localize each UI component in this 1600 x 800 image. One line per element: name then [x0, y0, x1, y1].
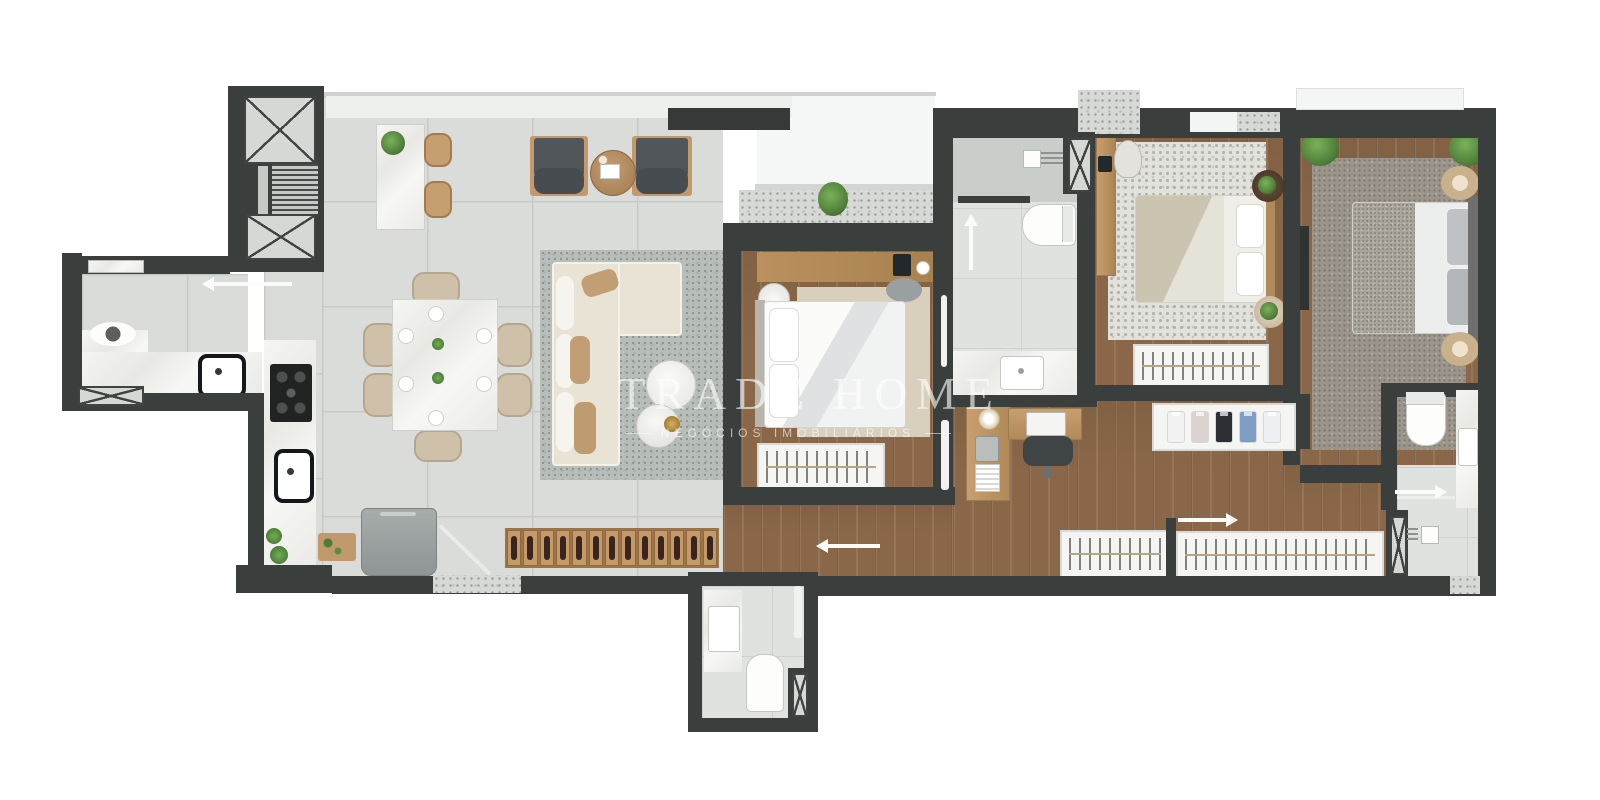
- laundry-basket: [90, 322, 136, 346]
- closet-hangers: [1142, 352, 1260, 380]
- elevator-shaft-1: [244, 96, 316, 164]
- armchair-1-pillow: [534, 168, 584, 194]
- place-setting: [428, 306, 444, 322]
- bedroom1-desk-cup: [916, 261, 930, 275]
- office-chair-base: [1043, 466, 1051, 478]
- kitchen-left-wall: [248, 393, 264, 583]
- bedroom1-pillow-1: [769, 308, 799, 362]
- island-stool-2: [424, 181, 452, 218]
- master-sink: [1458, 428, 1478, 466]
- corridor-shirt-shelf: [1152, 403, 1296, 451]
- bedroom2-pillow-1: [1236, 204, 1264, 248]
- shower-head-lines: [1041, 152, 1065, 164]
- table-garnish: [432, 338, 444, 350]
- wine-bottle: [589, 530, 603, 566]
- folded-shirt: [1168, 412, 1184, 442]
- top-window-line: [322, 92, 936, 96]
- bedroom3-tray-top: [1441, 166, 1479, 200]
- place-setting: [398, 328, 414, 344]
- balcony-bench: [668, 108, 790, 130]
- island-stool-1: [424, 133, 452, 167]
- wine-bottle: [523, 530, 537, 566]
- kitchen-faucet-dot: [287, 468, 294, 475]
- folded-shirt: [1264, 412, 1280, 442]
- bedroom2-laptop: [1098, 156, 1112, 172]
- nook-papers: [975, 464, 1000, 492]
- coffee-table-cup: [598, 155, 608, 165]
- bedroom2-plant-2: [1260, 302, 1278, 320]
- powder-toilet: [746, 654, 784, 712]
- dining-table: [393, 300, 497, 430]
- master-shower-control: [1421, 526, 1439, 544]
- master-toilet-tank: [1406, 392, 1444, 405]
- watermark: TRADE HOME NEGÓCIOS IMOBILIÁRIOS: [618, 368, 958, 440]
- kitchen-sink: [274, 449, 314, 503]
- bedroom2-duvet: [1136, 196, 1224, 302]
- entry-door-arrow: [206, 282, 292, 286]
- wine-bottle: [621, 530, 635, 566]
- watermark-subtitle: NEGÓCIOS IMOBILIÁRIOS: [618, 426, 958, 440]
- bedroom3-balcony-sill: [1296, 88, 1464, 110]
- shaft-corridor-x: [1390, 516, 1407, 575]
- nook-laptop: [1026, 412, 1066, 436]
- refrigerator-handle: [380, 512, 416, 516]
- bedroom2-plant-1: [1258, 176, 1276, 194]
- kitchen-threshold: [433, 575, 521, 593]
- bathroom1-window: [1078, 90, 1140, 134]
- shower-control: [1023, 150, 1041, 168]
- shaft-powder-x: [792, 673, 808, 717]
- duct-side-bar: [258, 166, 268, 214]
- terrace-plant: [818, 182, 848, 216]
- place-setting: [428, 410, 444, 426]
- wine-bottle: [507, 530, 521, 566]
- corridor-door-arrow: [820, 544, 880, 548]
- closet-hangers: [1185, 539, 1375, 570]
- powder-sink: [708, 606, 740, 652]
- kitchen-greens-2: [270, 546, 288, 564]
- sofa-pillow-tan-3: [574, 402, 596, 454]
- bedroom2-closet: [1133, 344, 1269, 388]
- corridor-closet-2: [1176, 531, 1384, 578]
- shower-door-arrow: [1395, 490, 1443, 494]
- cutting-board: [318, 533, 356, 561]
- wine-bottle: [556, 530, 570, 566]
- closet-divider-wall: [1166, 518, 1176, 578]
- folded-shirt: [1192, 412, 1208, 442]
- shaft-bathroom1-x: [1068, 138, 1092, 192]
- bedroom2-pillow-2: [1236, 252, 1264, 296]
- sofa-back-cushion-1: [556, 276, 574, 330]
- outer-right-wall: [1478, 108, 1496, 594]
- elevator-shaft-2: [246, 214, 316, 260]
- powder-door-panel: [794, 586, 802, 638]
- wine-bottle: [572, 530, 586, 566]
- bedroom1-desk-laptop: [893, 254, 911, 276]
- folded-shirt: [1216, 412, 1232, 442]
- dining-chair-right-1: [496, 323, 532, 367]
- sofa-back-cushion-3: [556, 392, 574, 452]
- bedroom1-bottom-wall: [723, 487, 955, 505]
- shower-zone: [951, 138, 1077, 202]
- dining-chair-right-2: [496, 373, 532, 417]
- master-bath-threshold: [1450, 576, 1480, 594]
- dining-chair-bottom: [414, 430, 462, 462]
- bathroom1-faucet: [1018, 368, 1024, 374]
- island-plant: [381, 131, 405, 155]
- corridor-threshold: [723, 505, 741, 576]
- cooktop: [270, 364, 312, 422]
- folded-shirt: [1240, 412, 1256, 442]
- service-vent-shaft: [78, 386, 144, 406]
- table-garnish: [432, 372, 444, 384]
- wine-bottle: [670, 530, 684, 566]
- bathroom1-door-arrow: [969, 218, 973, 270]
- bottom-wall-east: [723, 576, 1496, 596]
- place-setting: [476, 328, 492, 344]
- bedroom3-tray-bottom: [1441, 332, 1479, 366]
- bathroom1-toilet-tank: [1062, 206, 1073, 242]
- sink-faucet-dot: [215, 368, 222, 375]
- wine-bottle: [540, 530, 554, 566]
- sofa-pillow-tan-2: [570, 336, 590, 384]
- bedroom2-chair: [1114, 140, 1142, 178]
- closet-hangers: [766, 451, 876, 483]
- place-setting: [476, 376, 492, 392]
- coffee-table-book: [600, 164, 620, 179]
- corridor-floor-west: [723, 505, 953, 576]
- closet-door-arrow: [1178, 518, 1234, 522]
- service-window: [88, 260, 144, 273]
- folded-shirts: [1154, 405, 1294, 449]
- office-chair: [1023, 436, 1073, 466]
- bedroom3-throw: [1353, 203, 1415, 333]
- nook-radio: [975, 436, 999, 462]
- bedroom1-closet: [757, 443, 885, 491]
- refrigerator: [361, 508, 437, 576]
- armchair-2-pillow: [636, 168, 688, 194]
- bedroom2-window-sill: [1237, 112, 1280, 132]
- closet-hangers: [1069, 538, 1161, 570]
- laundry-sink: [198, 354, 246, 398]
- vent-duct: [272, 164, 318, 214]
- watermark-title: TRADE HOME: [618, 368, 958, 420]
- wine-bottle: [686, 530, 700, 566]
- bedroom2-headboard: [1266, 192, 1275, 304]
- place-setting: [398, 376, 414, 392]
- kitchen-greens-1: [266, 528, 282, 544]
- wine-bottle: [654, 530, 668, 566]
- bedroom1-stool: [886, 278, 922, 302]
- bedroom2-window: [1190, 112, 1237, 132]
- floor-plan: TRADE HOME NEGÓCIOS IMOBILIÁRIOS: [0, 0, 1600, 800]
- wine-rack: [505, 528, 719, 568]
- wine-bottle: [605, 530, 619, 566]
- corridor-closet-1: [1060, 530, 1170, 578]
- bedroom2-bottom-wall: [1077, 385, 1300, 401]
- bedroom1-top-wall: [723, 223, 953, 251]
- wine-bottle: [638, 530, 652, 566]
- kitchen-bottom-wall: [236, 565, 332, 593]
- shower-ledge: [958, 196, 1030, 203]
- wine-bottle: [703, 530, 717, 566]
- wardrobe-door-handle-1: [941, 295, 947, 367]
